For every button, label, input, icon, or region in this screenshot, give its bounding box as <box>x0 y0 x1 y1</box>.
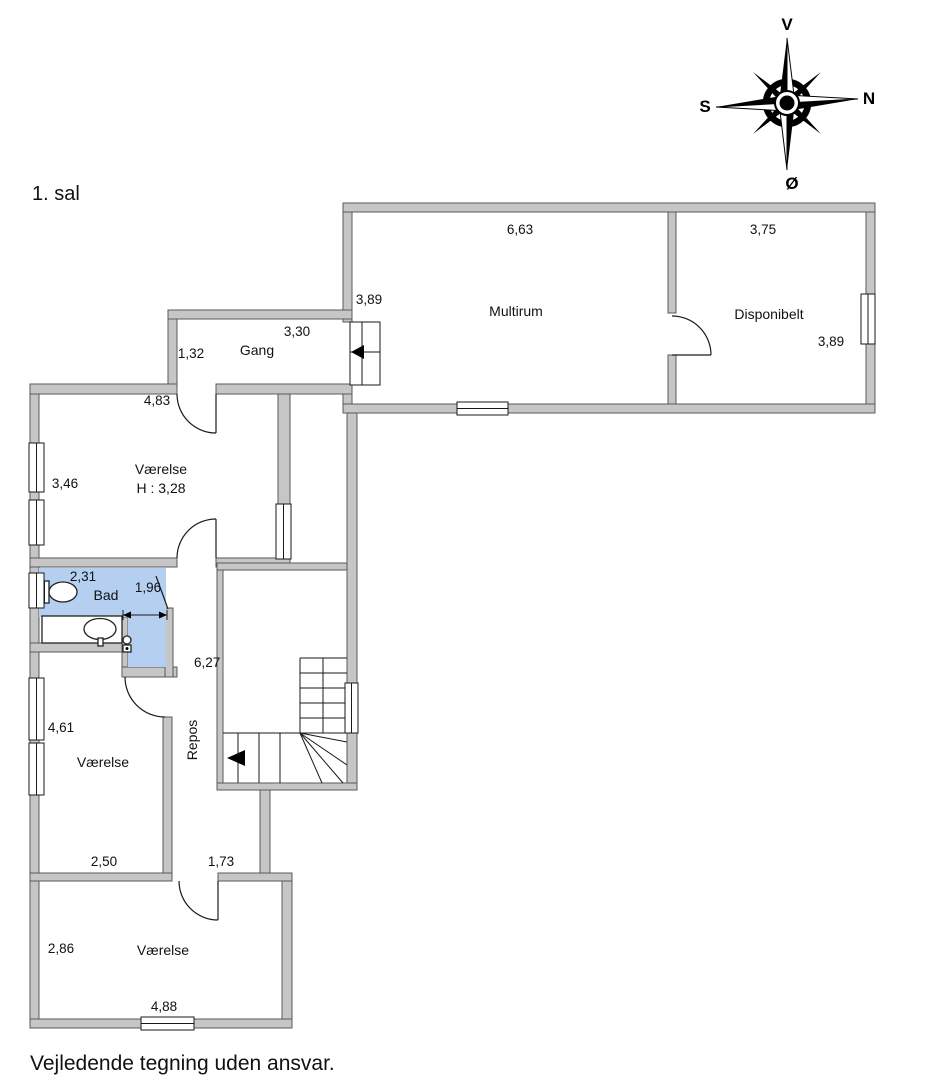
door-swing <box>179 881 218 920</box>
window <box>29 743 44 795</box>
room-label-multirum: Multirum <box>489 303 543 319</box>
wall <box>668 355 676 404</box>
dim-gang-left: 1,32 <box>178 346 204 361</box>
floor-plan-drawing: V N S Ø 1. sal 6,63 Multirum 3,89 3,75 D… <box>0 0 945 1080</box>
room-label-gang: Gang <box>240 342 274 358</box>
window <box>276 504 291 559</box>
compass-label-s: S <box>699 97 710 116</box>
dim-vaerelse-nw-left: 3,46 <box>52 476 78 491</box>
window <box>457 402 508 415</box>
toilet-icon <box>40 581 77 603</box>
compass-label-v: V <box>781 15 793 34</box>
room-label-bad: Bad <box>94 587 119 603</box>
wall <box>260 790 270 873</box>
wall <box>216 384 352 394</box>
room-label-vaerelse-s: Værelse <box>137 942 189 958</box>
window <box>29 500 44 545</box>
wall <box>168 319 177 384</box>
wall <box>30 873 172 881</box>
wall <box>30 558 177 567</box>
wall <box>30 643 128 652</box>
dim-vaerelse-s-left: 2,86 <box>48 941 74 956</box>
page-title: 1. sal <box>32 183 80 205</box>
room-label-vaerelse-w: Værelse <box>77 754 129 770</box>
window <box>29 573 44 608</box>
room-label-repos: Repos <box>184 720 200 760</box>
dim-disponibelt-top: 3,75 <box>750 222 776 237</box>
wall <box>343 212 352 322</box>
disclaimer-note: Vejledende tegning uden ansvar. <box>30 1052 335 1075</box>
steps-to-multirum <box>350 322 380 385</box>
wall <box>165 608 173 677</box>
wall <box>217 563 357 570</box>
door-swing <box>177 519 216 558</box>
dim-vaerelse-s-bottom: 4,88 <box>151 999 177 1014</box>
wall <box>282 881 292 1028</box>
window <box>29 443 44 492</box>
dim-disponibelt-right: 3,89 <box>818 334 844 349</box>
wall <box>163 717 172 881</box>
door-swing <box>672 316 711 355</box>
wall <box>217 570 223 783</box>
compass-rose-icon: V N S Ø <box>699 15 875 193</box>
dim-vaerelse-nw-top: 4,83 <box>144 393 170 408</box>
wall <box>343 203 875 212</box>
door-swing <box>125 677 165 717</box>
compass-label-o: Ø <box>785 174 798 193</box>
window <box>861 294 875 344</box>
wall <box>217 783 357 790</box>
dim-multirum-top: 6,63 <box>507 222 533 237</box>
floor-plan-page: V N S Ø 1. sal 6,63 Multirum 3,89 3,75 D… <box>0 0 945 1080</box>
dim-multirum-left: 3,89 <box>356 292 382 307</box>
dim-hall-bottom: 1,73 <box>208 854 234 869</box>
dim-vaerelse-w-bottom: 2,50 <box>91 854 117 869</box>
window <box>141 1017 194 1030</box>
dim-gang-top: 3,30 <box>284 324 310 339</box>
dim-repos-right: 6,27 <box>194 655 220 670</box>
wall <box>168 310 352 319</box>
dim-bad-top: 2,31 <box>70 569 96 584</box>
wall <box>343 404 875 413</box>
room-label-vaerelse-nw: Værelse <box>135 461 187 477</box>
dim-vaerelse-w-left: 4,61 <box>48 720 74 735</box>
staircase <box>223 658 347 783</box>
room-label-disponibelt: Disponibelt <box>734 306 803 322</box>
wall <box>218 873 292 881</box>
compass-label-n: N <box>863 89 875 108</box>
window <box>29 678 44 740</box>
stair-direction-arrow-icon <box>227 750 245 766</box>
dim-bad-door: 1,96 <box>135 580 161 595</box>
door-swing <box>177 394 216 433</box>
wall <box>668 212 676 313</box>
ceiling-height-note: H : 3,28 <box>136 480 185 496</box>
window <box>345 683 358 733</box>
